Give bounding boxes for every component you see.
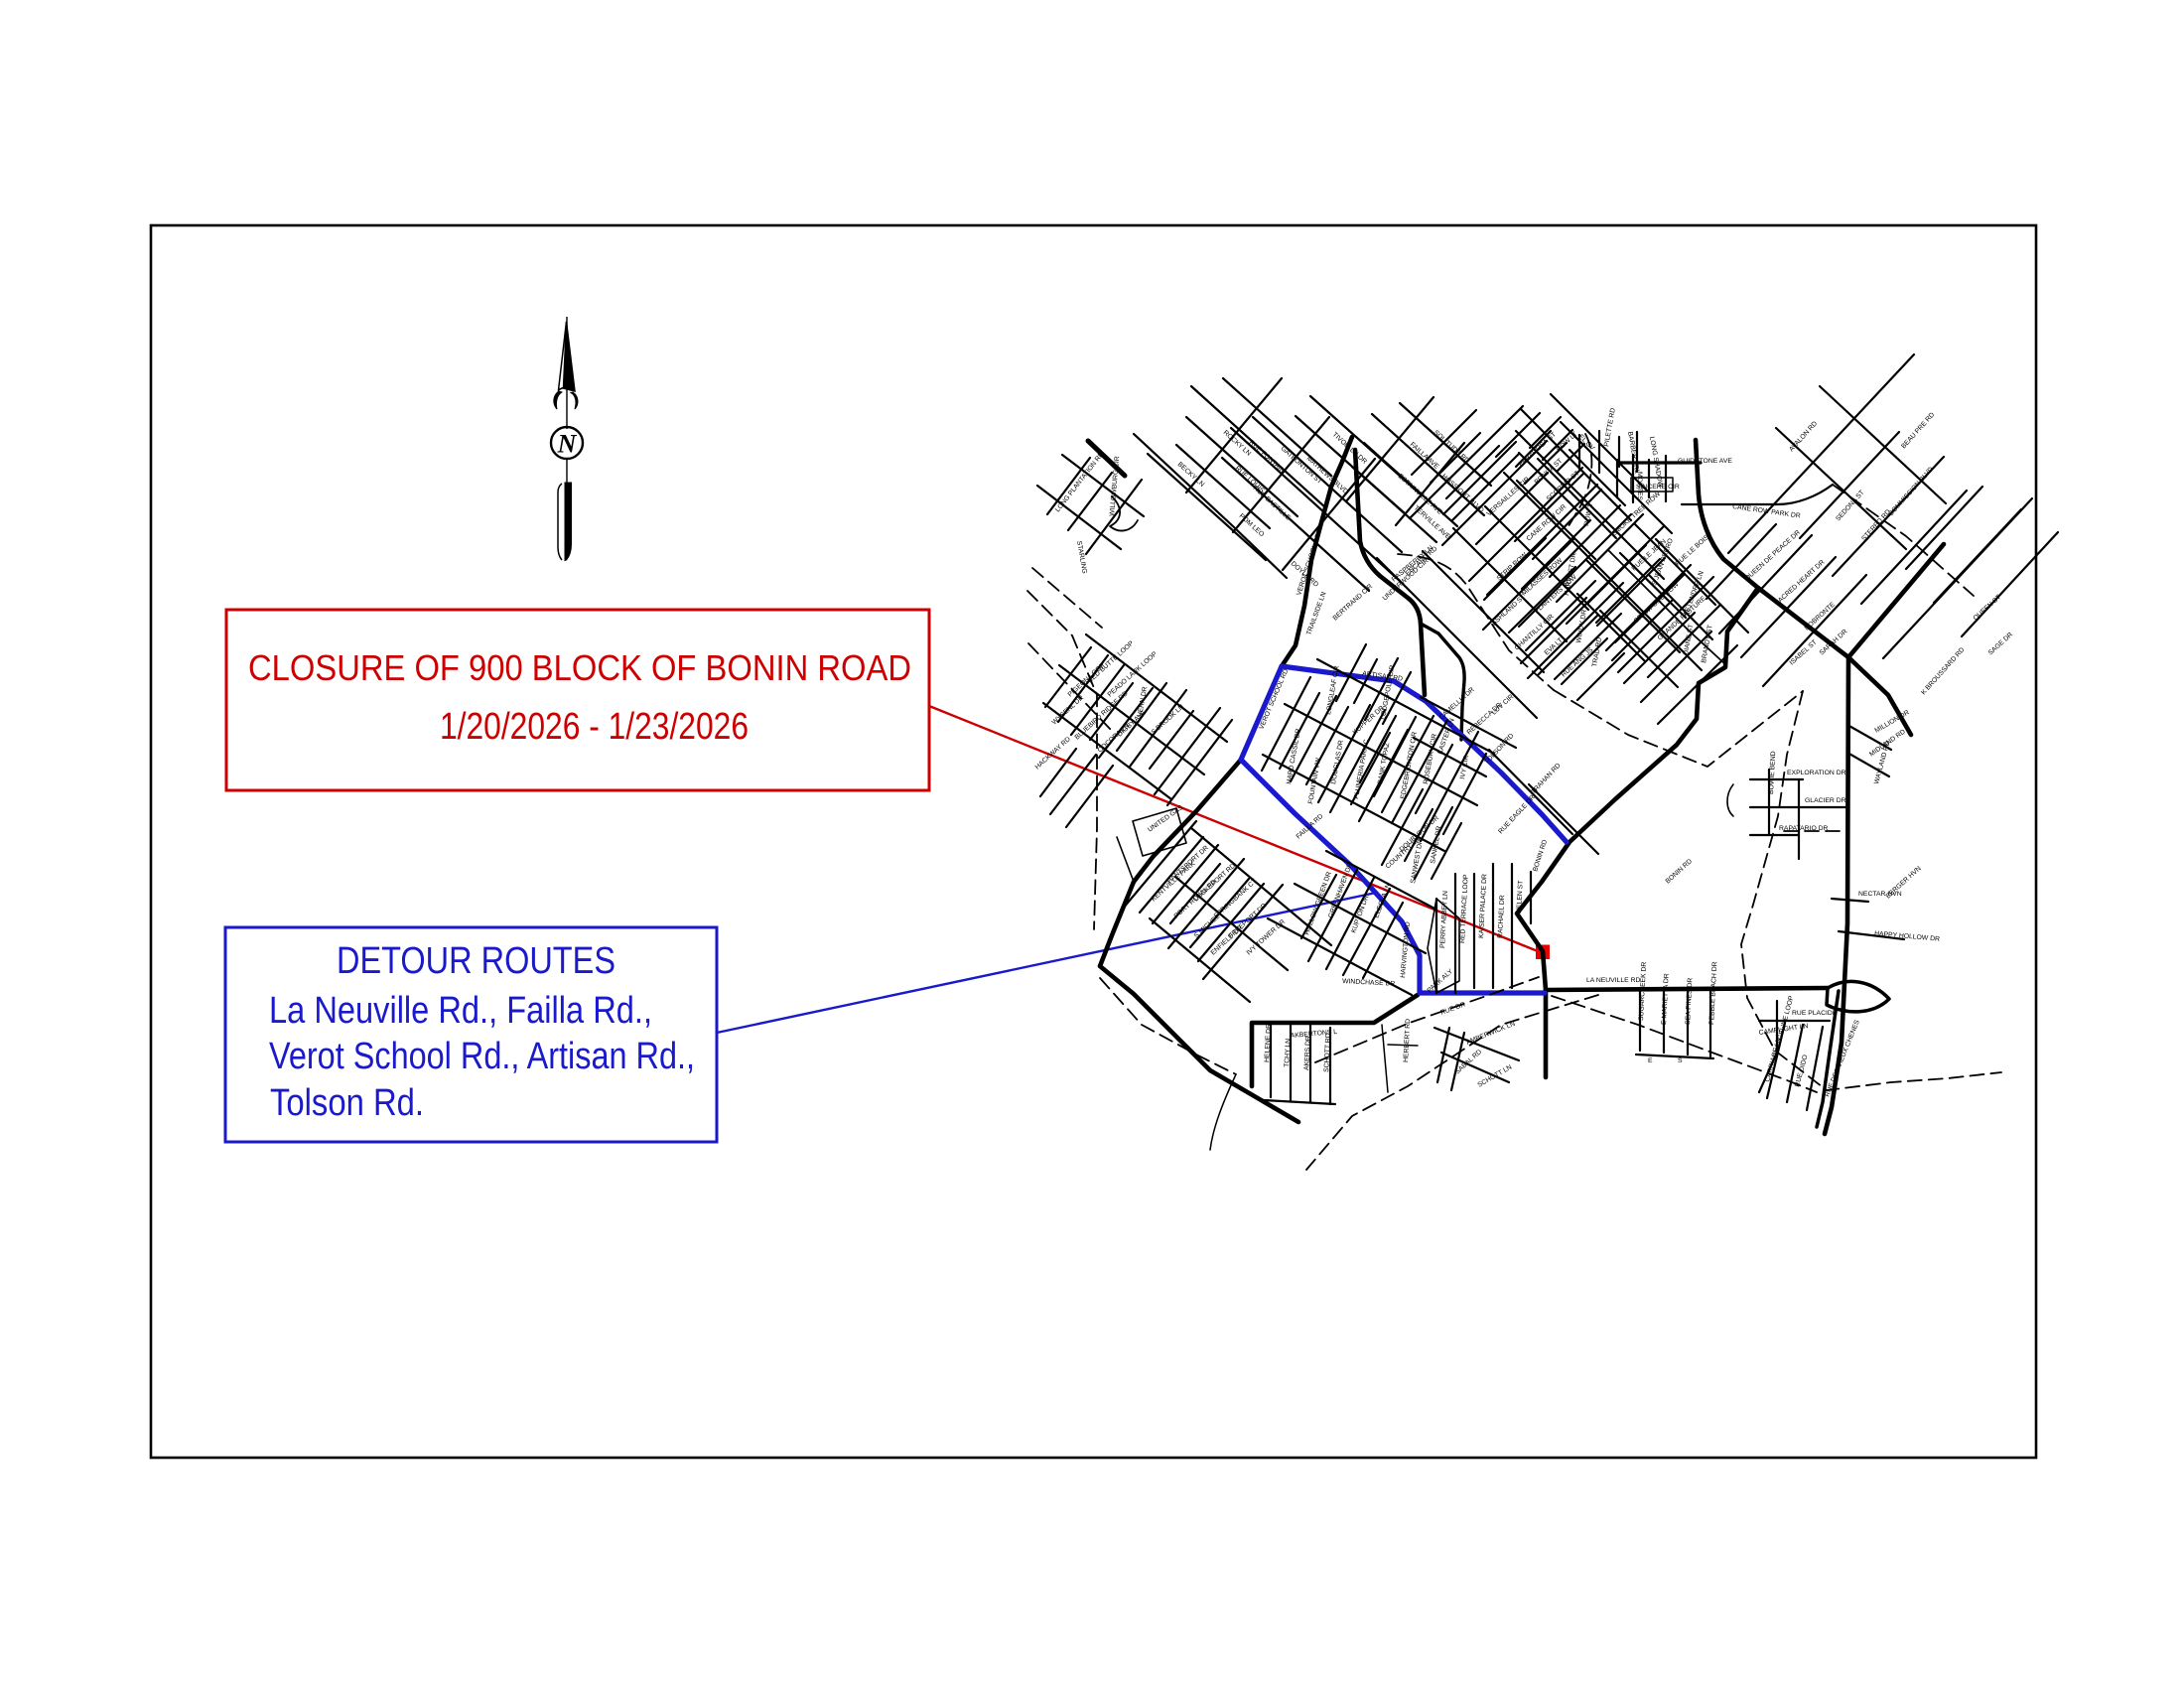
svg-text:SCHOTT LN: SCHOTT LN [1477, 1063, 1514, 1088]
svg-text:BARBER TRL: BARBER TRL [1626, 431, 1640, 474]
svg-text:RUE LE BOIS: RUE LE BOIS [1675, 533, 1711, 567]
svg-text:PEBBLE BEACH DR: PEBBLE BEACH DR [1708, 961, 1718, 1025]
svg-text:CLOSURE OF 900 BLOCK OF BONIN: CLOSURE OF 900 BLOCK OF BONIN ROAD [248, 647, 911, 688]
svg-text:HACKWAY RD: HACKWAY RD [1034, 736, 1072, 772]
svg-text:RACHAEL DR: RACHAEL DR [1497, 895, 1506, 938]
svg-text:RUE FONTAIN: RUE FONTAIN [1248, 439, 1287, 475]
svg-text:BERTRAND CIR: BERTRAND CIR [1332, 583, 1375, 622]
svg-text:GREENHAVEN DR: GREENHAVEN DR [1327, 862, 1354, 919]
svg-text:EXPLORATION DR: EXPLORATION DR [1787, 770, 1846, 776]
svg-text:HARD CASSIL DR: HARD CASSIL DR [1286, 728, 1302, 784]
svg-text:STARLING: STARLING [1075, 540, 1088, 574]
svg-text:S BROOK LN: S BROOK LN [1151, 703, 1186, 736]
svg-text:CRAWFORD ROW: CRAWFORD ROW [1633, 581, 1681, 626]
svg-text:RUE PLACIDE: RUE PLACIDE [1792, 1010, 1838, 1017]
svg-text:TRAILSIDE LN: TRAILSIDE LN [1305, 591, 1327, 635]
svg-text:RED TERRACE LOOP: RED TERRACE LOOP [1459, 874, 1470, 943]
svg-text:BERGER HVN: BERGER HVN [1885, 865, 1923, 900]
svg-text:TIVOLI LN DR: TIVOLI LN DR [1331, 431, 1368, 466]
svg-text:AVALON RD: AVALON RD [1788, 420, 1819, 453]
svg-text:EVA LT: EVA LT [1544, 637, 1565, 657]
svg-text:ASHLAND ST: ASHLAND ST [1491, 594, 1527, 628]
svg-text:STRIP ROW: STRIP ROW [1496, 551, 1530, 582]
svg-text:GUIDSTONE AVE: GUIDSTONE AVE [1678, 458, 1732, 465]
svg-text:Verot School Rd., Artisan Rd.,: Verot School Rd., Artisan Rd., [269, 1036, 695, 1077]
svg-text:HERBERT RD: HERBERT RD [1403, 1019, 1412, 1062]
svg-text:WINDCHASE DR: WINDCHASE DR [1342, 978, 1396, 988]
svg-text:LA NEUVILLE RD: LA NEUVILLE RD [1586, 977, 1640, 984]
svg-text:E MARIETTA DR: E MARIETTA DR [1661, 973, 1671, 1025]
svg-text:QUEEN ST: QUEEN ST [1973, 594, 2003, 622]
svg-text:RAPATARIO DR: RAPATARIO DR [1779, 825, 1829, 832]
svg-text:FREEPORT DR: FREEPORT DR [1228, 903, 1269, 940]
svg-text:PILETTE RD: PILETTE RD [1603, 407, 1617, 447]
svg-text:La Neuville Rd., Failla Rd.,: La Neuville Rd., Failla Rd., [269, 990, 652, 1032]
svg-text:BEAU PRE RD: BEAU PRE RD [1900, 411, 1936, 450]
svg-text:SAGE DR: SAGE DR [1987, 632, 2014, 657]
svg-text:FAILLA AVE: FAILLA AVE [1409, 441, 1440, 471]
svg-text:N: N [557, 430, 578, 459]
svg-text:RUE DR: RUE DR [1439, 1001, 1466, 1017]
svg-text:DETOUR ROUTES: DETOUR ROUTES [337, 940, 615, 982]
svg-text:KAISER PALACE DR: KAISER PALACE DR [1478, 874, 1488, 938]
svg-text:BONIN RD: BONIN RD [1665, 858, 1694, 885]
svg-text:AMBERWICK LN: AMBERWICK LN [1465, 1021, 1516, 1047]
svg-text:PERRY ABBEY LN: PERRY ABBEY LN [1439, 891, 1449, 948]
svg-text:RUE ANG JS: RUE ANG JS [1561, 646, 1595, 679]
svg-text:S: S [1678, 1057, 1683, 1064]
svg-text:BONIN RD: BONIN RD [1532, 839, 1549, 873]
svg-text:HARVEST DR: HARVEST DR [1564, 552, 1577, 596]
svg-text:RUE EAGLE DR: RUE EAGLE DR [1497, 794, 1537, 836]
svg-text:GLACIER DR: GLACIER DR [1805, 797, 1846, 804]
svg-text:VERN DR: VERN DR [1137, 686, 1149, 717]
svg-text:COMMISSION BLVD: COMMISSION BLVD [1887, 466, 1935, 517]
svg-text:DOBRONTE: DOBRONTE [1804, 601, 1838, 632]
svg-text:CANE ROW PARK DR: CANE ROW PARK DR [1732, 503, 1801, 520]
svg-text:DOUGLAS DR: DOUGLAS DR [1330, 740, 1345, 785]
svg-text:E: E [1648, 1057, 1653, 1064]
svg-text:1/20/2026 - 1/23/2026: 1/20/2026 - 1/23/2026 [440, 706, 749, 748]
svg-text:GRANDE PASTURE: GRANDE PASTURE [1657, 595, 1708, 641]
svg-text:Tolson Rd.: Tolson Rd. [270, 1082, 424, 1124]
svg-text:TERVILLE AVE: TERVILLE AVE [1413, 504, 1452, 541]
svg-text:SEA PINES DR: SEA PINES DR [1685, 977, 1694, 1025]
svg-text:TRAHAN RD: TRAHAN RD [1530, 763, 1562, 796]
svg-text:BOWIE BEND: BOWIE BEND [1768, 751, 1777, 794]
svg-text:ELEGLA LN: ELEGLA LN [1373, 883, 1392, 919]
svg-text:K BROUSSARD RD: K BROUSSARD RD [1920, 646, 1966, 696]
svg-text:HAPPY HOLLOW DR: HAPPY HOLLOW DR [1874, 930, 1940, 943]
svg-text:HARVINGTON RD: HARVINGTON RD [1400, 921, 1412, 978]
svg-text:MONTES: MONTES [1636, 472, 1643, 501]
